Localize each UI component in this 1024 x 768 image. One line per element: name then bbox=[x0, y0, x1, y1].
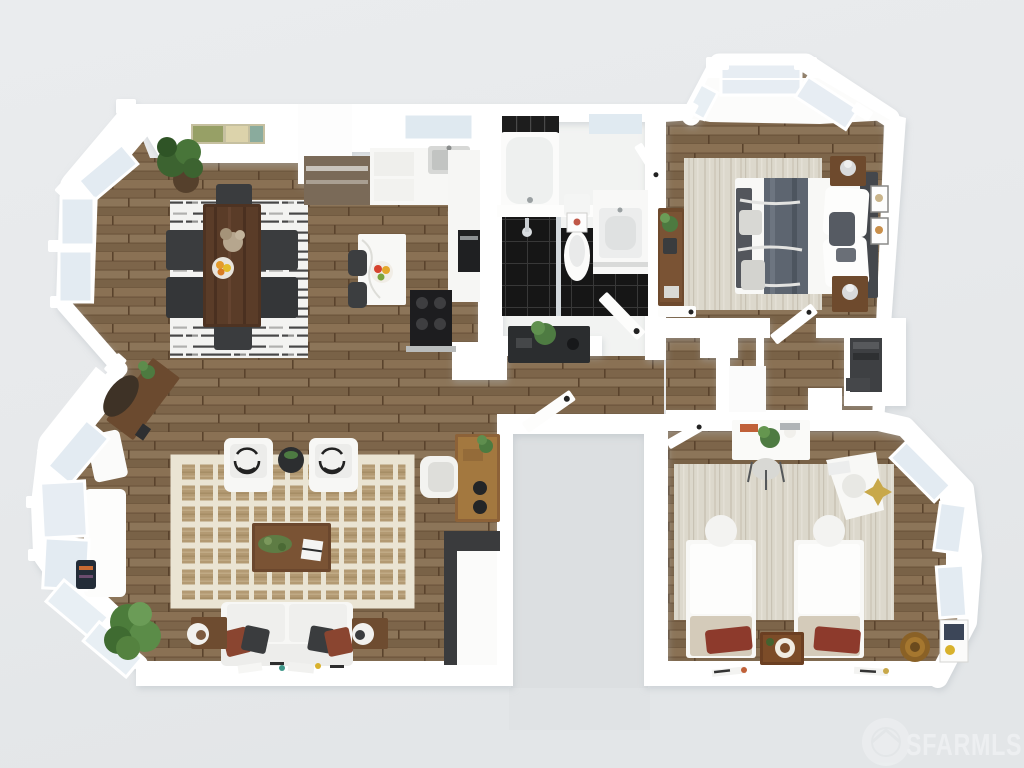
svg-text:SFARMLS: SFARMLS bbox=[906, 727, 1022, 762]
